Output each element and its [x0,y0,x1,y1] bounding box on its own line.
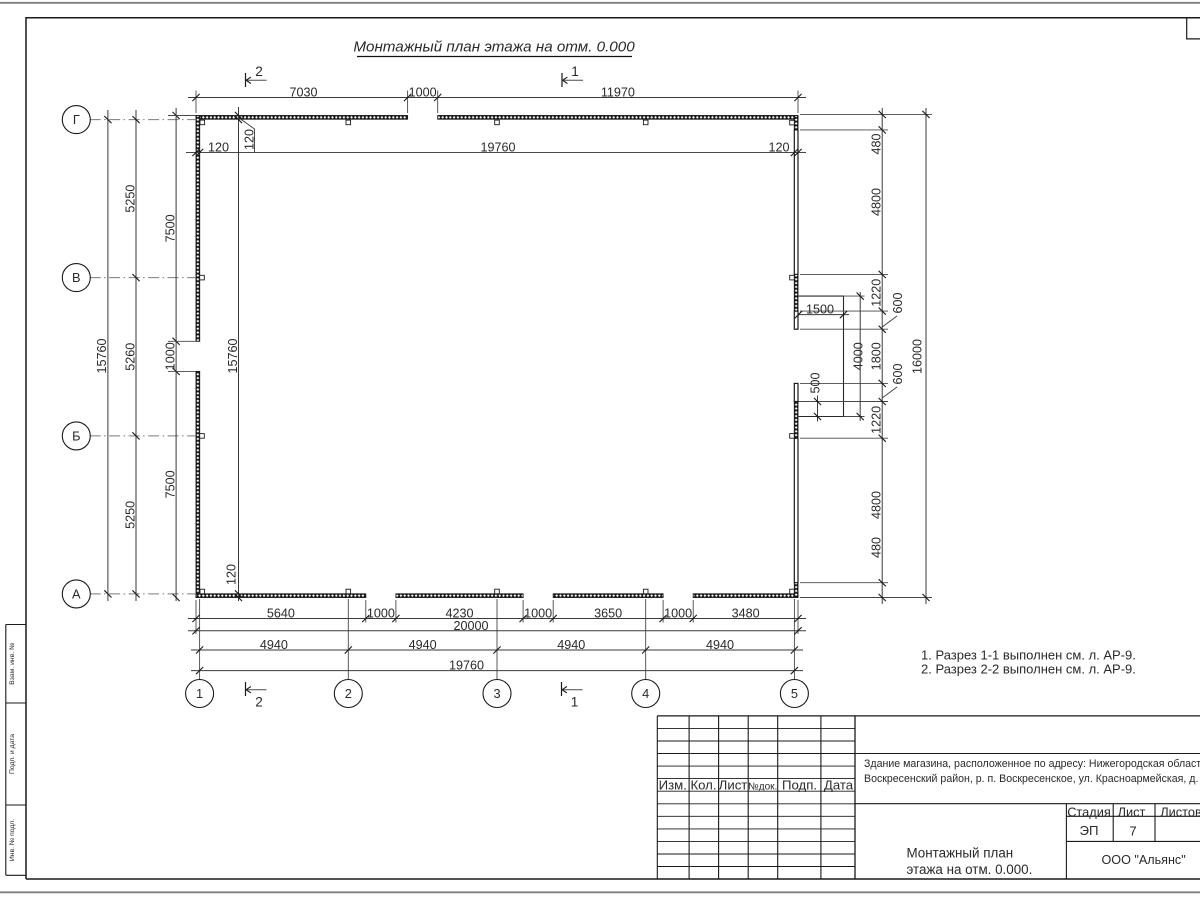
svg-text:В: В [72,270,81,285]
svg-text:1000: 1000 [664,607,692,621]
svg-text:600: 600 [891,363,905,384]
svg-text:Б: Б [72,429,80,444]
svg-text:500: 500 [808,372,822,393]
svg-text:1: 1 [196,686,203,701]
svg-text:Взам. инв. №: Взам. инв. № [9,643,16,685]
svg-text:Здание магазина, расположенное: Здание магазина, расположенное по адресу… [864,758,1200,770]
svg-text:5250: 5250 [123,501,137,529]
svg-text:этажа на отм. 0.000.: этажа на отм. 0.000. [907,862,1033,877]
svg-text:Монтажный план: Монтажный план [907,846,1014,861]
svg-text:7: 7 [1129,824,1136,839]
svg-text:19760: 19760 [449,659,484,673]
svg-text:120: 120 [225,564,239,585]
svg-text:120: 120 [208,141,229,155]
svg-text:5260: 5260 [123,343,137,371]
svg-text:Дата: Дата [824,778,854,793]
svg-text:2: 2 [255,64,263,79]
svg-text:Монтажный план этажа на отм. 0: Монтажный план этажа на отм. 0.000 [353,39,635,56]
svg-text:ЭП: ЭП [1080,823,1099,838]
svg-text:Г: Г [73,112,80,127]
svg-text:20000: 20000 [453,619,488,633]
svg-text:120: 120 [242,129,256,150]
svg-text:Подп.: Подп. [782,778,817,793]
svg-text:4940: 4940 [409,638,437,652]
svg-text:1220: 1220 [870,279,884,307]
svg-text:1800: 1800 [870,342,884,370]
svg-text:Стадия: Стадия [1067,805,1111,820]
svg-text:480: 480 [870,133,884,154]
svg-text:Воскресенский район, р. п. Вос: Воскресенский район, р. п. Воскресенское… [864,773,1200,785]
svg-text:2. Разрез 2-2 выполнен см. л.: 2. Разрез 2-2 выполнен см. л. АР-9. [921,662,1136,677]
svg-text:2: 2 [255,694,263,709]
svg-text:4940: 4940 [557,638,585,652]
svg-text:7030: 7030 [289,86,317,100]
svg-text:ООО "Альянс": ООО "Альянс" [1101,853,1185,867]
svg-text:4940: 4940 [706,638,734,652]
svg-text:№док.: №док. [748,782,777,793]
svg-text:1000: 1000 [524,607,552,621]
svg-text:А: А [72,587,81,602]
svg-text:4800: 4800 [870,188,884,216]
svg-text:Кол.: Кол. [690,778,716,793]
svg-text:3480: 3480 [732,607,760,621]
svg-text:120: 120 [768,141,789,155]
svg-text:Изм.: Изм. [659,778,687,793]
svg-text:Листов: Листов [1160,805,1200,820]
svg-text:1. Разрез 1-1 выполнен см. л.: 1. Разрез 1-1 выполнен см. л. АР-9. [921,648,1136,663]
svg-text:Подп. и дата: Подп. и дата [9,734,16,774]
svg-text:5250: 5250 [123,185,137,213]
svg-text:4000: 4000 [851,342,865,370]
svg-text:2: 2 [345,686,352,701]
svg-text:3650: 3650 [594,607,622,621]
svg-text:16000: 16000 [911,339,925,374]
svg-text:1000: 1000 [409,86,437,100]
svg-text:Лист: Лист [719,778,748,793]
svg-text:600: 600 [891,292,905,313]
svg-text:1500: 1500 [806,303,834,317]
svg-text:15760: 15760 [95,338,109,373]
svg-text:5640: 5640 [267,607,295,621]
svg-text:5: 5 [791,686,798,701]
svg-text:1: 1 [571,64,579,79]
svg-text:7500: 7500 [163,214,177,242]
svg-text:4940: 4940 [260,638,288,652]
svg-text:1000: 1000 [163,342,177,370]
svg-text:4: 4 [642,686,649,701]
svg-text:7500: 7500 [163,470,177,498]
svg-text:1000: 1000 [367,607,395,621]
svg-text:1: 1 [571,694,579,709]
svg-text:Лист: Лист [1118,805,1146,820]
svg-text:1220: 1220 [870,406,884,434]
svg-text:4800: 4800 [870,491,884,519]
svg-text:Инв. № подл.: Инв. № подл. [9,819,16,861]
svg-text:19760: 19760 [480,141,515,155]
svg-text:3: 3 [493,686,500,701]
svg-text:480: 480 [870,537,884,558]
svg-text:11970: 11970 [601,86,635,100]
svg-text:15760: 15760 [226,338,240,373]
